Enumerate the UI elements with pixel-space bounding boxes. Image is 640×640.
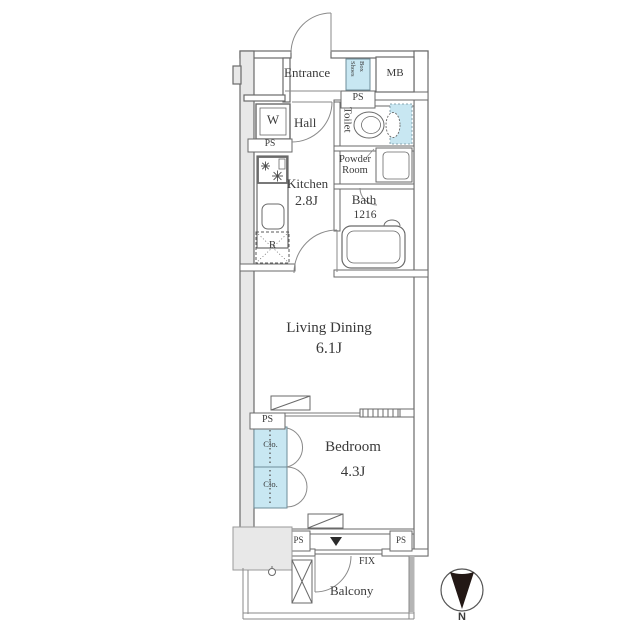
kitchen-sink [262, 204, 284, 229]
wall-void-bottom [244, 95, 285, 101]
bath-faucet-bump [384, 220, 400, 226]
bathtub-inner [347, 231, 400, 263]
label-washing-machine: W [256, 113, 290, 127]
label-living-dining-size: 6.1J [283, 341, 375, 358]
burner-2 [272, 171, 283, 182]
label-ps-mid: PS [250, 415, 285, 426]
kitchen-ld-door [294, 230, 337, 273]
wall-left-band [240, 51, 254, 568]
wall-divider-right [400, 409, 414, 417]
label-ps-top: PS [341, 93, 375, 104]
label-kitchen: Kitchen [287, 177, 328, 191]
label-bedroom-size: 4.3J [308, 465, 398, 481]
label-kitchen-size: 2.8J [295, 195, 318, 210]
label-closet-1: Clo. [254, 440, 287, 449]
burner-1 [261, 162, 270, 171]
toilet-bowl-inner [362, 117, 381, 134]
floor-plan: Entrance Shoes Box MB PS W PS Hall Toile… [0, 0, 640, 640]
balcony-structure [233, 527, 415, 619]
balcony-entry-triangle [330, 537, 342, 546]
wall-kitchen-bottom [240, 264, 295, 271]
shoes-box-line1: Shoes [348, 61, 357, 89]
wall-bath-bottom [334, 270, 428, 277]
label-toilet: Toilet [341, 107, 353, 147]
label-ps-left: PS [248, 140, 292, 150]
label-refrigerator: R [256, 240, 289, 252]
label-bath: Bath [346, 193, 382, 207]
shoes-box-line2: Box [357, 61, 366, 89]
toilet-icon [354, 112, 400, 138]
label-fix-window: FIX [350, 557, 384, 568]
label-compass-north: N [450, 612, 474, 624]
label-mb: MB [376, 68, 414, 80]
wall-left-notch [233, 66, 241, 84]
wall-right [414, 51, 428, 556]
bathtub-icon [342, 220, 405, 268]
label-powder-room: Powder Room [336, 154, 374, 176]
label-hall: Hall [294, 116, 316, 130]
fix-window [315, 550, 382, 554]
label-shoes-box: Shoes Box [348, 61, 370, 89]
label-bath-size: 1216 [348, 209, 382, 221]
toilet-tank [386, 113, 400, 138]
washstand-inner [383, 152, 409, 179]
wall-toilet-left [334, 102, 340, 146]
wall-mb-bottom [375, 92, 428, 100]
label-living-dining: Living Dining [283, 321, 375, 337]
entrance-door [291, 13, 331, 53]
label-bedroom: Bedroom [308, 440, 398, 456]
balcony-partition [410, 556, 415, 612]
compass [441, 569, 483, 611]
label-balcony: Balcony [330, 584, 373, 598]
wall-bath-left [334, 189, 340, 231]
closet-doors [287, 428, 307, 507]
label-entrance: Entrance [284, 66, 344, 80]
interior-window-hatch [360, 409, 400, 417]
stove-grill [279, 159, 285, 169]
ac-unit-box [292, 560, 312, 603]
neighbor-block [233, 527, 292, 570]
wall-bath-top [334, 184, 414, 189]
compass-needle [450, 572, 474, 609]
label-ps-bottom-left: PS [287, 536, 310, 545]
label-ps-bottom-right: PS [390, 536, 412, 545]
label-closet-2: Clo. [254, 480, 287, 489]
